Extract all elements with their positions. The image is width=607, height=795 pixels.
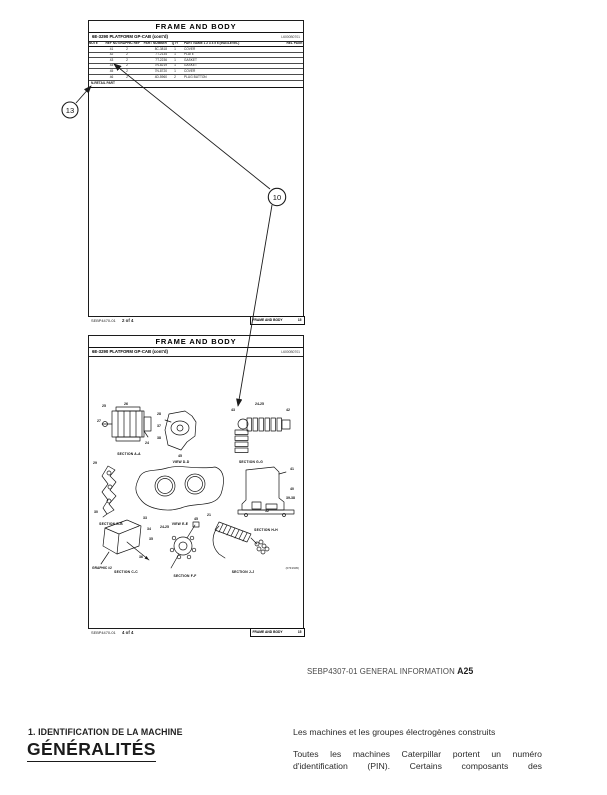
figure-section-g-g: 43 24-25 42 SECTION G-G <box>207 402 295 464</box>
circled-ref-13-label: 13 <box>66 106 74 115</box>
spring-assembly-drawing <box>207 508 279 566</box>
figure-label: SECTION J-J <box>207 571 279 575</box>
page2-title: FRAME AND BODY <box>89 336 303 348</box>
callout: 39-38 <box>286 497 295 501</box>
col-graphic-ref: GRAPHIC REF <box>118 42 136 45</box>
parts-table: NOTE REF NO GRAPHIC REF PART NUMBER QTY … <box>89 42 303 88</box>
callout: 43 <box>231 409 235 413</box>
callout: 24-25 <box>160 526 169 530</box>
col-part-name: PART NAME 1 2 3 4 5 6 (IND=LEVEL) <box>181 42 286 45</box>
callout: 24 <box>145 442 149 446</box>
bracket-drawing <box>159 408 203 456</box>
callout: 52 <box>265 510 269 514</box>
paragraph-line-2: d'identification (PIN). Certains composa… <box>293 761 542 773</box>
figure-label: SECTION F-F <box>163 575 207 579</box>
col-part-number: PART NUMBER <box>136 42 169 45</box>
figure-section-j-j: 21 52 SECTION J-J <box>207 508 279 574</box>
page2-footer-sheet: 4 of 4 <box>122 631 133 635</box>
figure-section-c-c: 33 34 35 36 SECTION C-C <box>97 514 155 574</box>
callout: 33 <box>143 517 147 521</box>
mount-box-drawing <box>97 514 155 566</box>
callout: 25 <box>102 405 106 409</box>
callout: 45 <box>194 518 198 522</box>
figure-section-a-a: 25 26 27 24 SECTION A-A <box>99 404 159 456</box>
caption-page: A25 <box>457 666 473 676</box>
col-ref-no: REF NO <box>105 42 118 45</box>
figure-label: SECTION A-A <box>99 453 159 457</box>
paragraph-line-1: Toutes les machines Caterpillar portent … <box>293 749 542 761</box>
col-qty: QTY <box>169 42 181 45</box>
callout: 35 <box>149 538 153 542</box>
page1-subtitle: 6E-3290 PLATFORM GP-CAB (cont'd) <box>92 35 168 40</box>
channel-strip-drawing <box>94 464 128 518</box>
figure-label: SECTION C-C <box>97 571 155 575</box>
page1-footer-section: FRAME AND BODY <box>253 319 283 323</box>
callout: 34 <box>147 528 151 532</box>
parts-sheet-4of4: FRAME AND BODY 6E-3290 PLATFORM GP-CAB (… <box>88 335 304 629</box>
page1-title: FRAME AND BODY <box>89 21 303 33</box>
callout: 42 <box>286 409 290 413</box>
page2-subheader: 6E-3290 PLATFORM GP-CAB (cont'd) L6000B0… <box>89 348 303 357</box>
parts-sheet-2of4: FRAME AND BODY 6E-3290 PLATFORM GP-CAB (… <box>88 20 304 317</box>
intro-line: Les machines et les groupes électrogènes… <box>293 727 542 737</box>
callout: 36 <box>139 556 143 560</box>
graphic-number-label: GRAPHIC #2 <box>92 567 112 571</box>
callout: 24-25 <box>255 403 264 407</box>
page2-footer-section: FRAME AND BODY <box>253 631 283 635</box>
page1-footer-pagenum: 15 <box>298 319 302 323</box>
figure-section-f-f: 24-25 45 SECTION F-F <box>163 520 207 578</box>
section-title: GÉNÉRALITÉS <box>27 739 156 762</box>
page1-footer-section-box: FRAME AND BODY 15 <box>250 316 305 325</box>
elbow-hose-drawing <box>207 402 295 456</box>
col-note: NOTE <box>89 42 105 45</box>
page1-footer-doc: SEBP4470-01 <box>91 319 116 323</box>
callout: 28 <box>157 413 161 417</box>
page2-footer-pagenum: 15 <box>298 631 302 635</box>
page1-subheader: 6E-3290 PLATFORM GP-CAB (cont'd) L6000B0… <box>89 33 303 42</box>
callout: 45 <box>178 455 182 459</box>
right-text-column: Les machines et les groupes électrogènes… <box>293 727 542 772</box>
figure-caption: SEBP4307-01 GENERAL INFORMATION A25 <box>307 666 473 676</box>
retail-part-note: N-RETAIL PART <box>89 81 303 88</box>
callout: 26 <box>124 403 128 407</box>
winch-assembly-drawing <box>99 404 159 448</box>
callout: 38 <box>157 437 161 441</box>
callout: 27 <box>97 420 101 424</box>
page1-footer-sheet: 2 of 4 <box>122 319 133 323</box>
callout: 21 <box>207 514 211 518</box>
flange-drawing <box>163 520 207 570</box>
callout: 29 <box>93 462 97 466</box>
section-heading: 1. IDENTIFICATION DE LA MACHINE <box>28 727 183 737</box>
page1-doc-id: L6000B0701 <box>281 35 300 40</box>
callout: 41 <box>290 468 294 472</box>
caption-ref: SEBP4307-01 GENERAL INFORMATION <box>307 667 455 676</box>
page2-footer-doc: SEBP4470-01 <box>91 631 116 635</box>
callout: 37 <box>157 425 161 429</box>
page2-footer-section-box: FRAME AND BODY 15 <box>250 628 305 637</box>
col-rel-page: REL PAGE <box>286 42 303 45</box>
document-page: FRAME AND BODY 6E-3290 PLATFORM GP-CAB (… <box>0 0 607 795</box>
circled-ref-13 <box>62 102 78 118</box>
callout: 40 <box>290 488 294 492</box>
photo-id-label: (07F1945) <box>286 567 299 570</box>
page2-doc-id: L6000B0701 <box>281 350 300 355</box>
page2-subtitle: 6E-3290 PLATFORM GP-CAB (cont'd) <box>92 350 168 355</box>
